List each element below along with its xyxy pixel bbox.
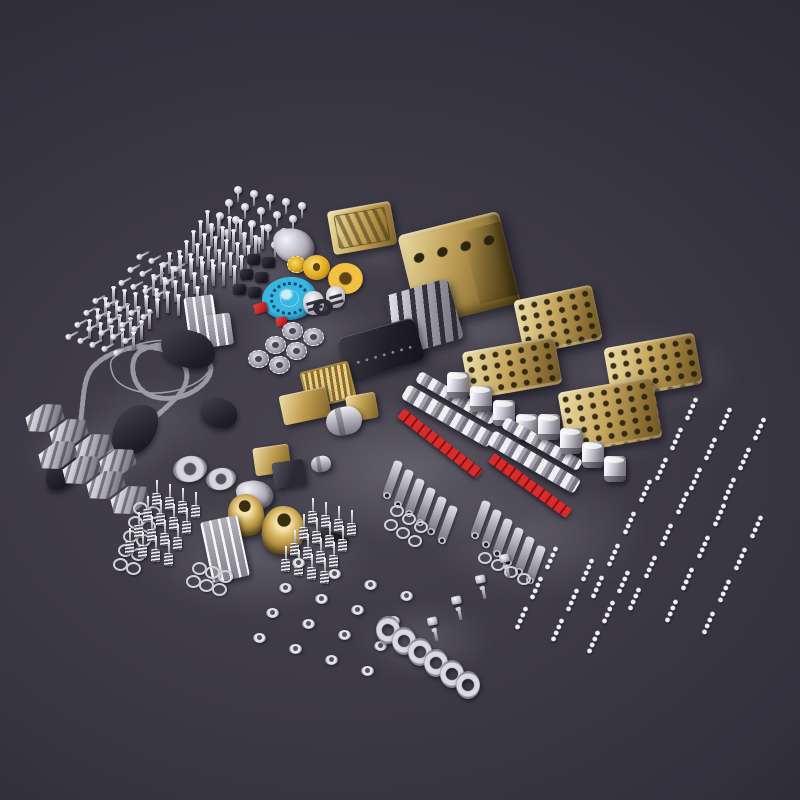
bolt-grid	[241, 203, 249, 219]
lifter-field	[315, 594, 328, 604]
bolt-string-field	[679, 566, 696, 593]
sprocket	[265, 336, 286, 354]
valve-spring-grid	[307, 554, 316, 580]
bolt-string-field	[658, 522, 675, 549]
piston	[470, 386, 492, 412]
valve-stem-grid	[156, 300, 159, 318]
lifter-field	[279, 583, 292, 593]
rubber-grommet	[262, 257, 275, 268]
valve-spring-grid	[347, 510, 356, 536]
washer-row	[218, 570, 233, 583]
bolt-string-field	[748, 514, 765, 541]
rubber-grommet	[233, 284, 246, 295]
bolt-grid	[264, 224, 272, 240]
lifter-field	[351, 605, 364, 615]
lifter-field	[325, 655, 338, 665]
valve-spring-grid	[125, 528, 134, 554]
piston	[560, 428, 582, 454]
bolt-string-field	[711, 502, 728, 529]
sprocket	[248, 350, 269, 368]
valve-spring-grid	[281, 546, 290, 572]
sprocket	[286, 342, 307, 360]
valve-stem-grid	[177, 296, 180, 316]
lifter-field	[253, 633, 266, 643]
rubber-grommet	[255, 272, 268, 283]
lifter-field	[361, 666, 374, 676]
valve-spring-grid	[138, 532, 147, 558]
bolt-string-field	[716, 578, 733, 605]
valve-stem-grid	[261, 227, 264, 249]
screw-row	[112, 345, 127, 357]
washer-row	[126, 562, 141, 575]
valve-spring-grid	[151, 536, 160, 562]
piston	[538, 414, 560, 440]
bolt-string-field	[702, 436, 719, 463]
bolt-grid	[266, 194, 274, 210]
piston	[582, 442, 604, 468]
water-pump-flange	[204, 466, 237, 493]
bolt-string-field	[687, 466, 704, 493]
lifter-field	[328, 569, 341, 579]
washer-row	[478, 552, 492, 564]
bolt-string-field	[585, 629, 602, 656]
crankshaft	[456, 671, 480, 699]
lifter-field	[338, 630, 351, 640]
lifter-field	[400, 591, 413, 601]
lifter-field	[292, 558, 305, 568]
valve-stem-grid	[222, 264, 225, 286]
lifter-field	[266, 608, 279, 618]
bolt-string-field	[721, 476, 738, 503]
bolt-string-field	[663, 598, 680, 625]
valve-spring-grid	[173, 524, 182, 550]
rubber-grommet	[248, 287, 261, 298]
bolt-string-field	[695, 534, 712, 561]
valve-spring-grid	[329, 542, 338, 568]
valve-stem-grid	[166, 293, 169, 313]
bolt-grid	[225, 199, 233, 215]
bolt-string-field	[751, 416, 768, 443]
bolt-string-field	[732, 546, 749, 573]
lifter-field	[364, 580, 377, 590]
washer-row	[517, 573, 531, 585]
rubber-grommet	[240, 269, 253, 280]
bolt-grid	[250, 190, 258, 206]
control-box-dark	[271, 459, 306, 489]
valve-spring-grid	[164, 540, 173, 566]
pulley-gold	[303, 255, 330, 280]
sprocket	[303, 328, 324, 346]
bolt-grid	[298, 202, 306, 218]
valve-spring-grid	[182, 508, 191, 534]
bolt-grid	[282, 198, 290, 214]
lifter-field	[289, 644, 302, 654]
valve-stem-grid	[212, 266, 215, 286]
bolt-string-field	[513, 605, 530, 632]
scene	[0, 0, 800, 800]
rubber-grommet	[247, 254, 260, 265]
bolt-string-field	[700, 610, 717, 637]
bolt-string-field	[674, 490, 691, 517]
bolt-grid	[257, 207, 265, 223]
bolt-string-field	[736, 446, 753, 473]
washer-row	[408, 535, 422, 547]
washer-row	[212, 583, 227, 596]
bolt-grid	[234, 186, 242, 202]
grommet-ring-dark	[313, 299, 333, 316]
bolt-grid	[273, 211, 281, 227]
bolt-string-field	[600, 599, 617, 626]
screw-row	[130, 321, 145, 333]
sprocket	[269, 356, 290, 374]
sprocket	[282, 322, 303, 340]
piston	[604, 456, 626, 482]
lifter-field	[302, 619, 315, 629]
piston	[447, 372, 469, 398]
bolt-string-field	[549, 617, 566, 644]
washer-row	[414, 521, 428, 533]
valve-spring-grid	[191, 492, 200, 518]
valve-spring-grid	[338, 526, 347, 552]
